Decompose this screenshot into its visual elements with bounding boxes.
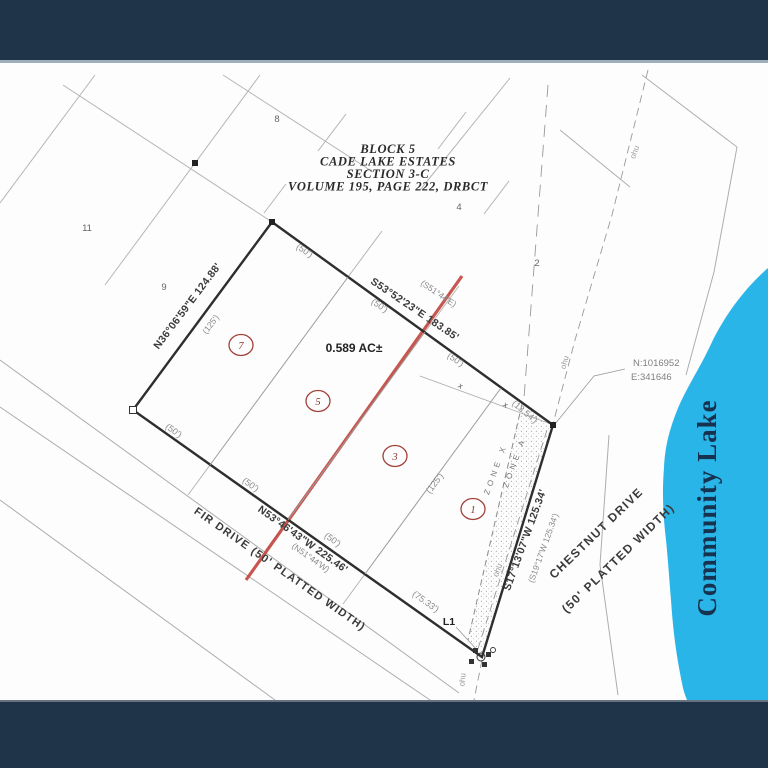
adjacent-lot-8: 8	[274, 114, 279, 125]
adjacent-lot-11: 11	[82, 223, 92, 234]
tick-50-bottom-1: (50')	[164, 421, 184, 439]
adjacent-lot-9: 9	[161, 282, 166, 293]
lot-1-number: 1	[470, 505, 475, 516]
title-line-4: VOLUME 195, PAGE 222, DRBCT	[288, 180, 489, 194]
lot-5-number: 5	[315, 397, 320, 408]
dashed-lines	[466, 70, 648, 740]
title-block: BLOCK 5 CADE LAKE ESTATES SECTION 3-C VO…	[288, 142, 489, 194]
ohu-label-2: ohu	[559, 355, 571, 370]
fence-x-1: x	[456, 381, 464, 391]
line-l1-label: L1	[443, 616, 455, 628]
chestnut-drive-label: CHESTNUT DRIVE	[546, 485, 646, 582]
ohu-label-4: ohu	[457, 673, 467, 687]
easting-label: E:341646	[631, 372, 672, 383]
survey-drawing: Community Lake BLOCK 5 CADE LAKE ESTATES…	[0, 0, 768, 768]
adjacent-lot-4: 4	[456, 202, 461, 213]
tick-125-interior: (125')	[424, 471, 446, 495]
tick-50-top-1: (50')	[295, 241, 315, 259]
adjacent-lot-2: 2	[534, 258, 539, 269]
lake-name-label: Community Lake	[692, 399, 722, 616]
tick-50-top-2: (50')	[370, 296, 390, 314]
plat-page: Community Lake BLOCK 5 CADE LAKE ESTATES…	[0, 0, 768, 768]
tick-50-bottom-2: (50')	[241, 475, 261, 493]
bearing-north-record: (S51°44'E)	[419, 278, 459, 309]
tick-50-top-3: (50')	[446, 350, 466, 368]
acreage-label: 0.589 AC±	[326, 341, 383, 355]
ohu-label-1: ohu	[628, 144, 641, 160]
bottom-banner	[0, 700, 768, 768]
lot-3-number: 3	[391, 452, 397, 463]
lot-circles	[229, 335, 485, 520]
lot-7-number: 7	[238, 341, 244, 352]
northing-label: N:1016952	[633, 358, 679, 369]
top-banner	[0, 0, 768, 63]
flood-zone-strip	[468, 404, 553, 657]
